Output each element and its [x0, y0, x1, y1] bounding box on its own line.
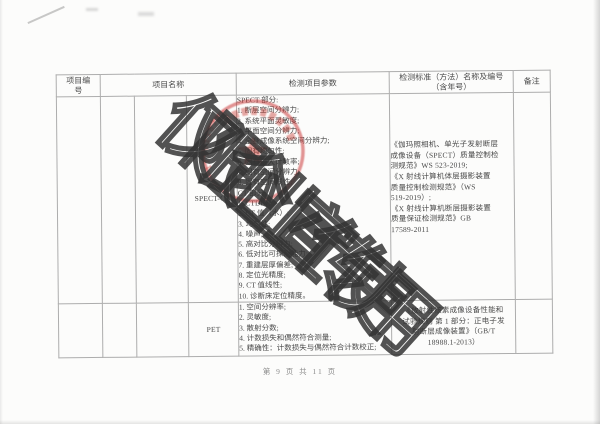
scan-artifact-line [27, 6, 64, 24]
header-project-no: 项目编号 [56, 74, 100, 96]
subcol-cell [134, 96, 188, 303]
project-no-cell [56, 96, 102, 303]
scanned-document-page: 项目编号 项目名称 检测项目参数 检测标准（方法）名称及编号（含年号） 备注 S… [0, 0, 600, 424]
stamp-arc-text-marks [225, 111, 293, 143]
scan-artifact-smudge [138, 12, 154, 16]
header-parameters: 检测项目参数 [236, 72, 389, 95]
subcol-cell [136, 303, 189, 357]
subcol-cell [100, 96, 136, 303]
stamp-serial-number: 1790118756 [201, 108, 230, 172]
header-project-name: 项目名称 [100, 73, 236, 96]
scan-artifact-smudge [86, 8, 98, 11]
remarks-cell [513, 92, 552, 299]
subcol-cell [102, 303, 137, 357]
project-no-cell [58, 303, 103, 357]
page-number-footer: 第 9 页 共 11 页 [0, 366, 600, 377]
standards-cell: 《放射性核素成像设备性能和 试验规则 第 1 部分：正电子发 射断层成像装置》（… [391, 299, 516, 354]
stamp-star-icon [238, 136, 269, 165]
parameters-cell: 1. 空间分辨率; 2. 灵敏度; 3. 散射分数; 4. 计数损失和偶然符合测… [238, 301, 392, 356]
project-name-cell: PET [188, 302, 239, 356]
header-standard: 检测标准（方法）名称及编号（含年号） [389, 70, 513, 93]
scan-edge-shadow-left [0, 0, 3, 424]
remarks-cell [515, 299, 553, 353]
scan-edge-shadow-bottom [0, 420, 600, 424]
scan-edge-shadow-right [593, 0, 600, 424]
header-remarks: 备注 [513, 70, 550, 92]
red-official-stamp: 1790118756 [197, 95, 309, 207]
table-row-pet: PET 1. 空间分辨率; 2. 灵敏度; 3. 散射分数; 4. 计数损失和偶… [58, 299, 552, 358]
standards-cell: 《伽玛照相机、单光子发射断层 成像设备（SPECT）质量控制检 测规范》WS 5… [389, 92, 515, 300]
